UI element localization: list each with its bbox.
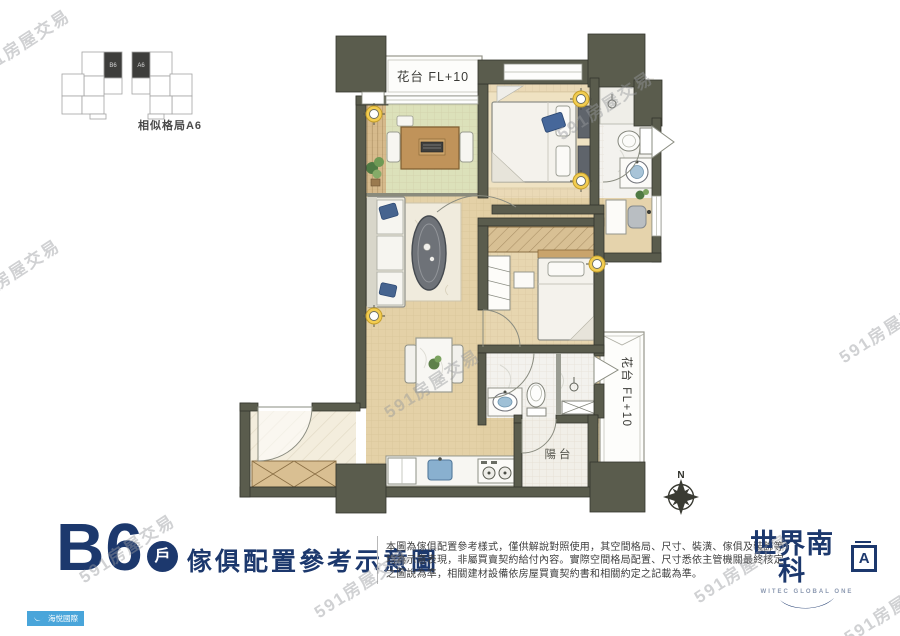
terrace-top-label: 花台 FL+10 bbox=[397, 69, 469, 84]
coffee-table bbox=[412, 216, 446, 290]
desk-chair bbox=[628, 206, 646, 228]
vanity-sink2 bbox=[488, 388, 522, 416]
unit-code: B6 bbox=[56, 514, 144, 581]
divider bbox=[377, 536, 378, 584]
toilet2 bbox=[527, 383, 546, 416]
disclaimer: 本圖為傢俱配置參考樣式，僅供解說對照使用，其空間格局、尺寸、裝潢、傢俱及裝飾等 … bbox=[386, 541, 784, 581]
brand-swoosh-icon bbox=[737, 596, 877, 618]
shoe-cabinet bbox=[252, 461, 336, 487]
bed-double bbox=[492, 102, 576, 182]
flower-terrace-right: 花台 FL+10 bbox=[600, 332, 644, 480]
key-plan: B6 A6 相似格局A6 bbox=[62, 52, 202, 132]
breakfast-chair-right bbox=[451, 345, 463, 383]
nightstand-3 bbox=[514, 272, 534, 288]
kitchen-counter bbox=[386, 456, 514, 486]
bed2-pillow bbox=[548, 262, 584, 276]
vanity-sink1 bbox=[620, 158, 654, 188]
compass: N bbox=[663, 470, 699, 515]
publisher-badge: 海悅國際 bbox=[27, 611, 84, 626]
washer-cabinet bbox=[562, 401, 596, 414]
terrace-right-label: 花台 FL+10 bbox=[620, 356, 634, 427]
disclaimer-line-1: 本圖為傢俱配置參考樣式，僅供解說對照使用，其空間格局、尺寸、裝潢、傢俱及裝飾等 bbox=[386, 541, 784, 554]
unit-type-circle: 戶 bbox=[147, 541, 178, 572]
key-plan-left-unit-label: B6 bbox=[109, 63, 117, 69]
column-bottom-right bbox=[590, 462, 645, 512]
key-plan-caption: 相似格局A6 bbox=[138, 118, 202, 132]
floor-plan-page: B6 A6 相似格局A6 bbox=[0, 0, 900, 636]
dining-chair-right bbox=[460, 132, 473, 162]
column-bottom-center bbox=[336, 464, 386, 513]
flower-terrace-top: 花台 FL+10 bbox=[384, 56, 482, 96]
column-top-left bbox=[336, 36, 386, 92]
disclaimer-line-3: 之圖說為準，相關建材設備依房屋買賣契約書和相關約定之記載為準。 bbox=[386, 568, 784, 581]
publisher-name: 海悅國際 bbox=[48, 613, 78, 624]
wardrobe bbox=[482, 227, 594, 252]
brand-name: 世界南科 bbox=[737, 531, 847, 585]
disclaimer-line-2: 均為示意表現，非屬買賣契約給付內容。實際空間格局配置、尺寸悉依主管機關最終核定 bbox=[386, 554, 784, 567]
bed-single bbox=[538, 250, 594, 340]
sofa bbox=[367, 197, 405, 307]
bed-pillow-white-2 bbox=[556, 146, 570, 176]
dining-chair-left bbox=[387, 132, 400, 162]
kitchen-sink bbox=[428, 460, 452, 480]
shelf-ladder bbox=[486, 256, 510, 310]
desk bbox=[606, 200, 626, 234]
brand-tagline: WITEC GLOBAL ONE bbox=[737, 589, 877, 595]
balcony-label: 陽台 bbox=[545, 447, 574, 461]
key-plan-right-unit-label: A6 bbox=[137, 63, 145, 69]
dining-threshold bbox=[366, 193, 478, 197]
breakfast-chair-left bbox=[405, 345, 417, 383]
publisher-swoosh-icon bbox=[33, 615, 45, 623]
stove bbox=[478, 459, 514, 483]
shower-glass-door bbox=[652, 126, 674, 158]
brand-logo: 世界南科 A WITEC GLOBAL ONE bbox=[737, 531, 877, 618]
brand-badge-a: A bbox=[851, 545, 877, 572]
